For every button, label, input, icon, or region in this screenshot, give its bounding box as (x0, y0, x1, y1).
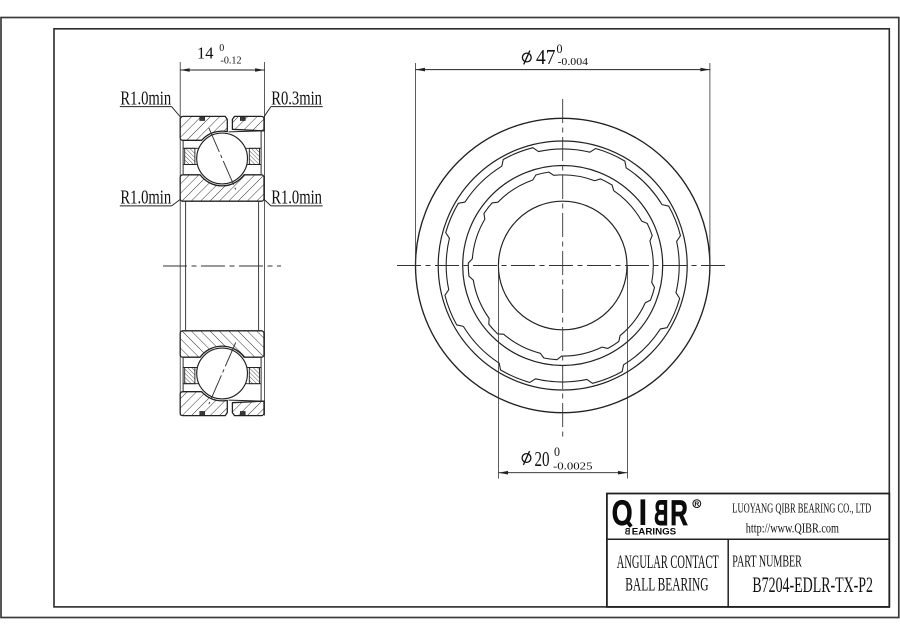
svg-text:PART NUMBER: PART NUMBER (732, 551, 802, 570)
svg-text:B7204-EDLR-TX-P2: B7204-EDLR-TX-P2 (752, 572, 873, 597)
svg-text:20: 20 (535, 447, 550, 471)
svg-text:B: B (625, 526, 631, 536)
svg-text:ANGULAR CONTACT: ANGULAR CONTACT (617, 552, 719, 573)
svg-text:R: R (694, 501, 699, 508)
svg-text:0: 0 (554, 444, 560, 459)
svg-text:R1.0min: R1.0min (120, 87, 171, 109)
svg-text:0: 0 (219, 43, 224, 54)
svg-text:0: 0 (557, 41, 563, 56)
svg-text:-0.0025: -0.0025 (553, 462, 593, 473)
svg-text:-0.12: -0.12 (221, 56, 242, 67)
svg-text:BALL BEARING: BALL BEARING (625, 574, 708, 595)
svg-text:R0.3min: R0.3min (271, 87, 322, 109)
svg-text:-0.004: -0.004 (558, 57, 589, 68)
svg-text:47: 47 (536, 45, 556, 69)
svg-text:http://www.QIBR.com: http://www.QIBR.com (746, 521, 839, 536)
svg-text:EARINGS: EARINGS (632, 526, 677, 536)
svg-text:14: 14 (197, 44, 214, 63)
svg-text:R1.0min: R1.0min (120, 187, 171, 209)
svg-text:R1.0min: R1.0min (271, 187, 322, 209)
svg-text:LUOYANG QIBR BEARING CO., LTD: LUOYANG QIBR BEARING CO., LTD (732, 500, 871, 515)
